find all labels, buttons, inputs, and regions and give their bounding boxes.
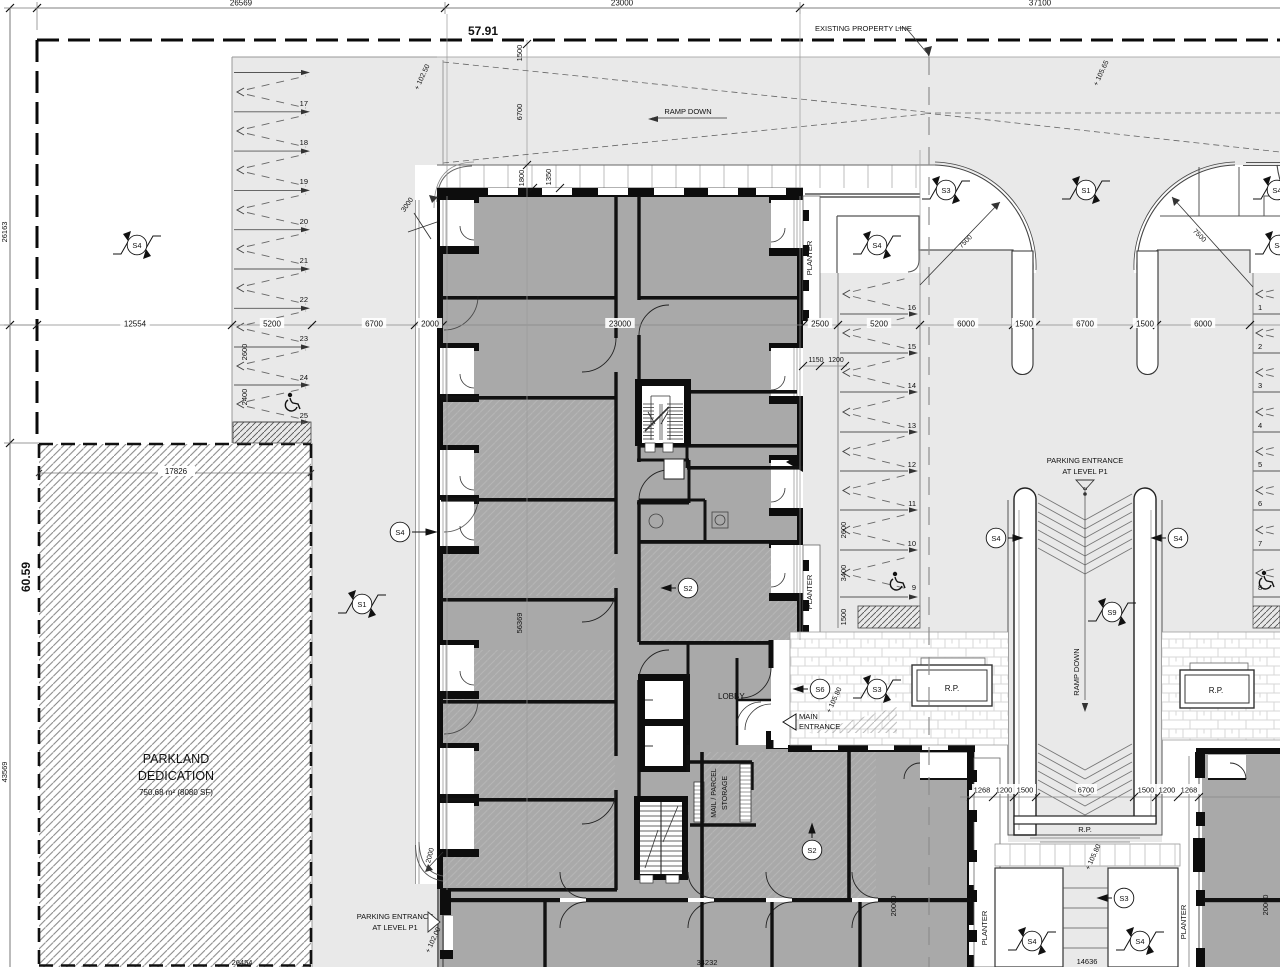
svg-text:1200: 1200 [1159,786,1176,795]
svg-text:18: 18 [300,138,308,147]
svg-text:S4: S4 [395,528,404,537]
svg-text:MAIN: MAIN [799,712,818,721]
svg-text:5200: 5200 [263,320,281,329]
svg-text:DEDICATION: DEDICATION [138,769,214,783]
svg-text:ENTRANCE: ENTRANCE [799,722,840,731]
svg-text:56369: 56369 [515,613,524,634]
svg-text:750.68 m² (8080 SF): 750.68 m² (8080 SF) [139,788,213,797]
svg-text:6000: 6000 [1194,320,1212,329]
svg-text:1500: 1500 [515,45,524,62]
svg-text:1500: 1500 [1015,320,1033,329]
svg-text:6700: 6700 [515,104,524,121]
svg-text:4: 4 [1258,421,1262,430]
svg-text:RAMP DOWN: RAMP DOWN [664,107,711,116]
svg-text:20000: 20000 [1261,895,1270,916]
svg-text:14: 14 [908,381,916,390]
svg-text:S4: S4 [1135,937,1144,946]
svg-text:1: 1 [1258,303,1262,312]
svg-text:MAIL / PARCEL: MAIL / PARCEL [711,768,718,818]
svg-text:3400: 3400 [839,565,848,582]
svg-text:15: 15 [908,342,916,351]
svg-text:26454: 26454 [232,958,253,967]
svg-text:20000: 20000 [889,896,898,917]
svg-text:1268: 1268 [1181,786,1198,795]
svg-text:1500: 1500 [1017,786,1034,795]
svg-text:1150: 1150 [808,357,823,364]
svg-text:S4: S4 [1274,241,1280,250]
svg-text:12554: 12554 [124,320,147,329]
svg-text:5: 5 [1258,460,1262,469]
svg-text:34232: 34232 [697,958,718,967]
svg-text:20: 20 [300,217,308,226]
svg-text:RAMP DOWN: RAMP DOWN [1072,648,1081,695]
svg-text:60.59: 60.59 [19,562,33,592]
svg-text:6700: 6700 [1076,320,1094,329]
svg-text:1500: 1500 [839,609,848,626]
svg-text:21: 21 [300,256,308,265]
svg-text:S2: S2 [683,584,692,593]
svg-text:S4: S4 [991,534,1000,543]
svg-text:R.P.: R.P. [1209,686,1224,695]
svg-text:14636: 14636 [1077,957,1098,966]
svg-text:6700: 6700 [365,320,383,329]
svg-text:7: 7 [1258,539,1262,548]
svg-text:26163: 26163 [0,222,9,243]
svg-text:23000: 23000 [609,320,632,329]
svg-text:S1: S1 [1081,186,1090,195]
svg-text:1268: 1268 [974,786,991,795]
svg-text:S9: S9 [1107,608,1116,617]
svg-text:37100: 37100 [1029,0,1052,8]
svg-text:PARKLAND: PARKLAND [143,752,209,766]
svg-text:19: 19 [300,177,308,186]
svg-text:2600: 2600 [839,522,848,539]
svg-text:22: 22 [300,295,308,304]
svg-text:26569: 26569 [230,0,253,8]
svg-text:1500: 1500 [1136,320,1154,329]
svg-text:17826: 17826 [165,467,188,476]
svg-text:17: 17 [300,99,308,108]
svg-text:12: 12 [908,460,916,469]
svg-text:1500: 1500 [1138,786,1155,795]
svg-text:EXISTING PROPERTY LINE: EXISTING PROPERTY LINE [815,24,912,33]
svg-text:24: 24 [300,373,308,382]
svg-text:3: 3 [1258,381,1262,390]
svg-text:S4: S4 [1272,186,1280,195]
svg-text:57.91: 57.91 [468,24,498,38]
svg-text:1800: 1800 [517,170,526,187]
svg-text:1350: 1350 [544,169,553,186]
svg-text:6000: 6000 [957,320,975,329]
svg-text:STORAGE: STORAGE [722,776,729,810]
svg-text:1200: 1200 [828,357,844,364]
svg-text:1200: 1200 [996,786,1013,795]
svg-text:S3: S3 [872,685,881,694]
svg-text:2500: 2500 [811,320,829,329]
svg-text:PLANTER: PLANTER [980,910,989,945]
svg-text:AT LEVEL P1: AT LEVEL P1 [1062,467,1107,476]
svg-text:S6: S6 [815,685,824,694]
svg-text:6700: 6700 [1078,786,1095,795]
svg-text:S4: S4 [1027,937,1036,946]
svg-text:11: 11 [908,499,916,508]
svg-text:10: 10 [908,539,916,548]
svg-text:23000: 23000 [611,0,634,8]
svg-text:S4: S4 [132,241,141,250]
svg-text:S4: S4 [1173,534,1182,543]
svg-text:LOBBY: LOBBY [718,692,745,701]
svg-text:S4: S4 [872,241,881,250]
svg-text:13: 13 [908,421,916,430]
svg-text:9: 9 [912,583,916,592]
svg-text:6: 6 [1258,499,1262,508]
svg-text:R.P.: R.P. [1078,825,1092,834]
svg-text:S3: S3 [941,186,950,195]
svg-text:PARKING ENTRANCE: PARKING ENTRANCE [357,912,434,921]
svg-text:2000: 2000 [421,320,439,329]
svg-text:43569: 43569 [0,762,9,783]
svg-text:S1: S1 [357,600,366,609]
svg-text:5200: 5200 [870,320,888,329]
svg-text:16: 16 [908,303,916,312]
svg-text:AT LEVEL P1: AT LEVEL P1 [372,923,417,932]
svg-text:2600: 2600 [240,344,249,361]
svg-text:PLANTER: PLANTER [1179,904,1188,939]
svg-text:S2: S2 [807,846,816,855]
svg-text:S3: S3 [1119,894,1128,903]
svg-text:R.P.: R.P. [945,684,960,693]
svg-text:2: 2 [1258,342,1262,351]
svg-text:2400: 2400 [240,389,249,406]
svg-text:PARKING ENTRANCE: PARKING ENTRANCE [1047,456,1124,465]
svg-text:23: 23 [300,334,308,343]
svg-text:25: 25 [300,411,308,420]
